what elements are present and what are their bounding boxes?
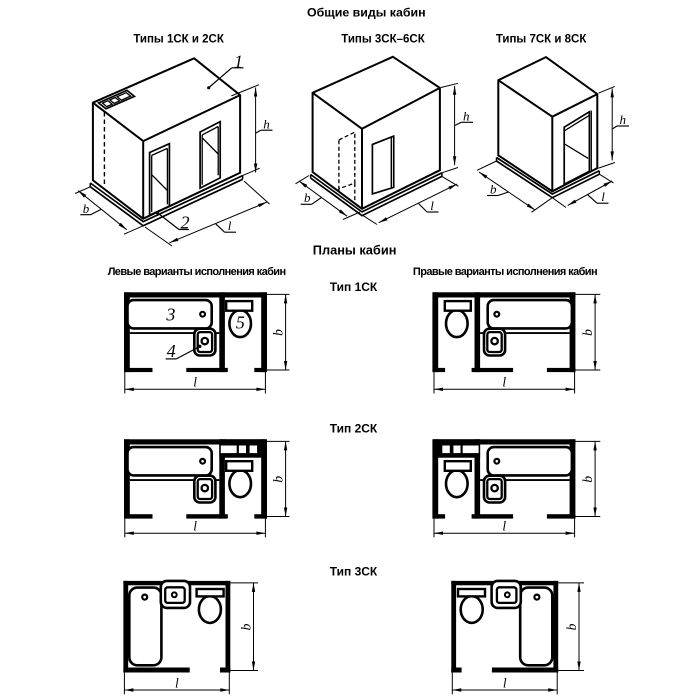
svg-text:l: l (193, 375, 197, 390)
svg-text:b: b (564, 623, 579, 630)
svg-text:b: b (580, 476, 595, 483)
svg-text:Тип 3СК: Тип 3СК (330, 565, 378, 579)
svg-text:Типы 7СК и 8СК: Типы 7СК и 8СК (496, 33, 587, 45)
svg-text:l: l (175, 675, 179, 690)
svg-text:Тип 2СК: Тип 2СК (330, 422, 378, 436)
svg-text:b: b (304, 190, 311, 205)
svg-text:h: h (463, 109, 470, 124)
svg-text:b: b (83, 201, 90, 216)
svg-text:4: 4 (167, 341, 176, 361)
svg-text:l: l (601, 189, 605, 204)
svg-text:l: l (430, 198, 434, 213)
svg-text:Типы 3СК–6СК: Типы 3СК–6СК (341, 33, 425, 45)
svg-text:l: l (228, 218, 232, 233)
svg-text:Планы кабин: Планы кабин (313, 242, 397, 257)
svg-text:l: l (193, 519, 197, 534)
svg-text:h: h (263, 117, 270, 132)
svg-text:l: l (502, 519, 506, 534)
svg-text:Общие виды кабин: Общие виды кабин (307, 5, 426, 19)
svg-text:b: b (490, 182, 497, 197)
svg-text:l: l (503, 675, 507, 690)
svg-text:b: b (271, 476, 286, 483)
svg-text:Правые варианты исполнения каб: Правые варианты исполнения кабин (413, 266, 597, 278)
svg-text:Левые варианты исполнения каби: Левые варианты исполнения кабин (108, 266, 286, 278)
svg-text:b: b (580, 329, 595, 336)
svg-text:l: l (502, 375, 506, 390)
svg-text:b: b (239, 623, 254, 630)
svg-text:h: h (619, 112, 626, 127)
svg-text:b: b (271, 329, 286, 336)
svg-text:Тип 1СК: Тип 1СК (330, 280, 378, 294)
svg-text:5: 5 (236, 313, 245, 333)
svg-text:Типы 1СК и 2СК: Типы 1СК и 2СК (133, 33, 224, 45)
svg-text:3: 3 (165, 304, 175, 324)
